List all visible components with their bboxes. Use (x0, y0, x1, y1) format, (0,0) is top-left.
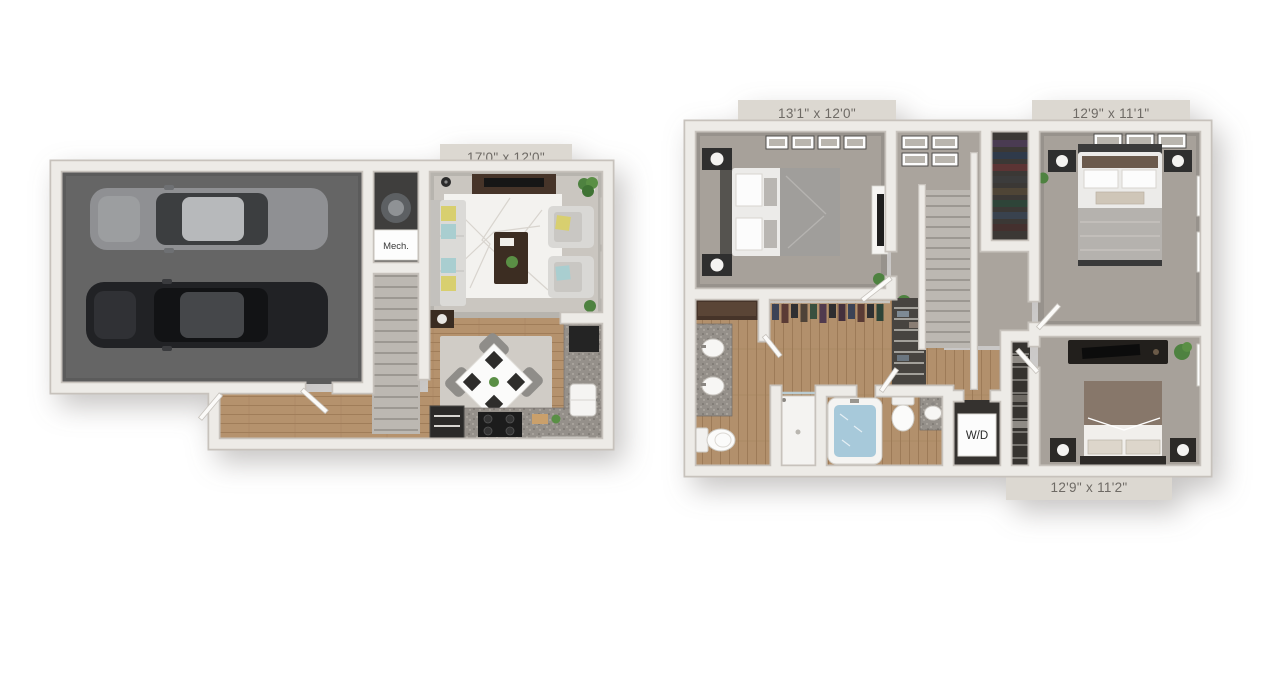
toilet (696, 428, 735, 452)
shower (778, 393, 819, 466)
dimension-text: 13'1" x 12'0" (778, 106, 856, 121)
media-console (1068, 340, 1168, 364)
picture-frame-art (847, 139, 863, 146)
pillow (1126, 440, 1160, 454)
hanging-clothes (992, 152, 1028, 159)
hanging-clothes (992, 140, 1028, 147)
hanging-clothes (829, 304, 836, 318)
hanging-clothes (810, 304, 817, 319)
hanging-clothes (791, 304, 798, 318)
linen-closet (990, 130, 1030, 242)
hanging-clothes (839, 304, 846, 321)
bed (720, 168, 840, 256)
stove (478, 412, 522, 437)
car-black (86, 279, 328, 351)
pillow-teal (441, 258, 456, 273)
nightstand (1164, 150, 1192, 172)
faucet-icon (596, 398, 600, 402)
books (500, 238, 514, 246)
hanging-clothes (992, 176, 1028, 183)
kitchen-sink (570, 384, 600, 416)
picture-frame-art (905, 139, 925, 146)
accent-pillows (1082, 156, 1158, 168)
pillow-yellow (441, 206, 456, 221)
nightstand (702, 254, 732, 276)
footboard (1078, 260, 1162, 266)
dimension-text: 12'9" x 11'2" (1051, 480, 1128, 495)
floor-lamp-icon (441, 177, 451, 187)
picture-frame-art (821, 139, 837, 146)
hanging-clothes (848, 304, 855, 319)
bed (1080, 381, 1166, 465)
cutting-board (532, 414, 548, 424)
table-centerpiece-plant-icon (489, 377, 499, 387)
accent-pillow (1096, 192, 1144, 204)
decor-item (1153, 349, 1159, 355)
hanging-clothes (992, 188, 1028, 195)
duvet (1078, 208, 1162, 266)
picture-frame-art (795, 139, 811, 146)
refrigerator (430, 406, 464, 440)
tv-console (472, 174, 556, 194)
lamp-icon (1057, 444, 1069, 456)
wall-oven (569, 326, 599, 352)
storage-box (1012, 395, 1028, 402)
nightstand (702, 148, 732, 170)
armchair (548, 256, 594, 298)
armchair (548, 206, 594, 248)
second-floor-plan: 13'1" x 12'0" 12'9" x 11'1" 12'9" x 11'2… (676, 96, 1241, 510)
vanity-counter (694, 324, 732, 416)
picture-frame-art (905, 156, 925, 163)
hanging-clothes (992, 164, 1028, 171)
lamp-icon (1177, 444, 1189, 456)
headboard-runner (720, 170, 734, 254)
potted-plant-icon (506, 256, 518, 268)
headboard (1080, 456, 1166, 465)
pillow-teal (555, 265, 570, 280)
bed (1078, 144, 1162, 266)
sofa (430, 200, 466, 306)
faucet-icon (931, 402, 935, 406)
lamp-icon (1172, 155, 1184, 167)
mech-label-text: Mech. (383, 241, 409, 252)
table-lamp-icon (437, 314, 447, 324)
nightstand (1050, 438, 1076, 462)
pillow (1122, 170, 1156, 188)
water-heater-top (388, 200, 404, 216)
faucet-icon (850, 399, 859, 403)
hanging-clothes (772, 304, 779, 320)
lamp-icon (711, 259, 724, 272)
potted-plant-icon (584, 300, 596, 312)
dimension-text: 12'9" x 11'1" (1073, 106, 1150, 121)
pillow-teal (441, 224, 456, 239)
accent-pillow (764, 220, 777, 248)
pillow-yellow (555, 215, 571, 231)
side-table (430, 310, 454, 328)
hanging-clothes (992, 200, 1028, 207)
hanging-clothes (992, 212, 1028, 219)
nightstand (1048, 150, 1076, 172)
staircase (372, 268, 420, 434)
bath-water (834, 405, 876, 457)
hanging-clothes (992, 224, 1028, 231)
pillow (736, 218, 762, 250)
hanging-clothes (782, 304, 789, 323)
hanging-clothes (858, 304, 865, 322)
picture-frame-art (1097, 137, 1119, 145)
hanging-clothes (820, 304, 827, 323)
shower-head-icon (782, 398, 786, 402)
pillow-yellow (441, 276, 456, 291)
bedroom3-dimension-label: 12'9" x 11'2" (1006, 474, 1172, 500)
picture-frame-art (935, 156, 955, 163)
hanging-clothes (867, 304, 874, 318)
tv-icon (877, 194, 884, 246)
pillow (1088, 440, 1122, 454)
hanging-clothes (801, 304, 808, 322)
picture-frame-art (935, 139, 955, 146)
picture-frame-art (1129, 137, 1151, 145)
car-silver (90, 185, 328, 253)
accent-pillow (764, 178, 777, 206)
potted-plant-icon (552, 415, 561, 424)
drain-icon (796, 430, 801, 435)
sink-icon (925, 406, 942, 420)
washer-dryer-label: W/D (966, 430, 988, 442)
first-floor-plan: 17'0" x 12'0" (42, 136, 622, 476)
bathtub (828, 398, 882, 464)
folded-clothes (897, 311, 909, 317)
picture-frame-art (1161, 137, 1183, 145)
coffee-table (494, 232, 528, 284)
duvet (1084, 381, 1162, 425)
picture-frame-art (769, 139, 785, 146)
lamp-icon (711, 153, 724, 166)
folded-clothes (897, 355, 909, 361)
storage-box (1012, 421, 1028, 428)
hanging-clothes (877, 304, 884, 321)
duvet (780, 168, 840, 256)
nightstand (1170, 438, 1196, 462)
staircase (924, 190, 972, 348)
washer-dryer-closet: W/D (952, 400, 1002, 467)
pillow (1084, 170, 1118, 188)
pillow (736, 174, 762, 206)
faucet-icon (701, 383, 706, 386)
faucet-icon (701, 345, 706, 348)
lamp-icon (1056, 155, 1068, 167)
toilet (892, 396, 914, 431)
tv-icon (484, 178, 544, 187)
